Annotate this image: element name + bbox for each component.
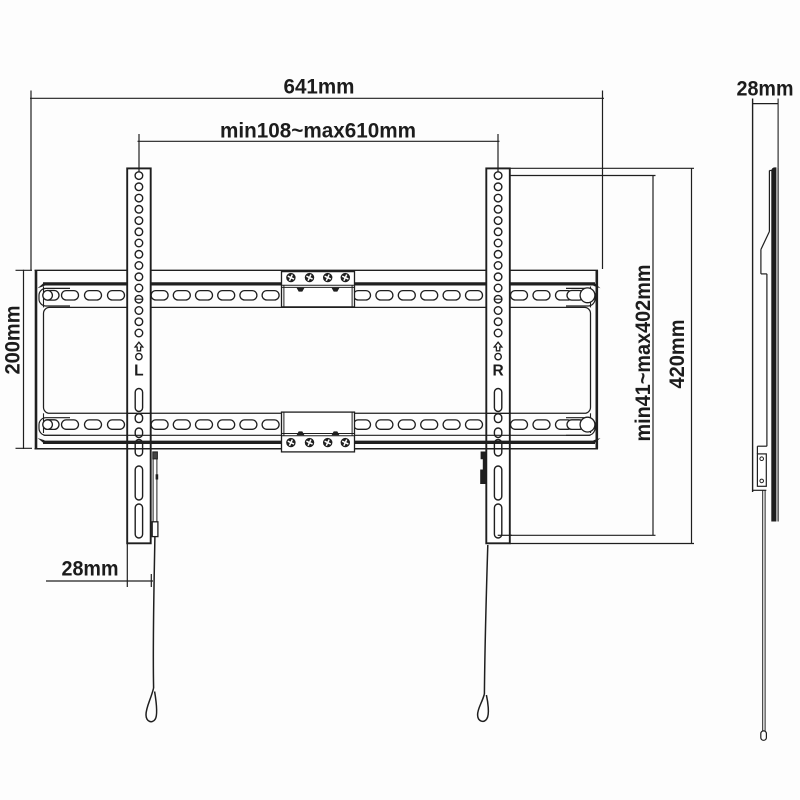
svg-text:28mm: 28mm	[62, 558, 119, 581]
svg-text:L: L	[134, 363, 143, 380]
svg-text:min41~max402mm: min41~max402mm	[632, 265, 655, 442]
svg-text:28mm: 28mm	[737, 78, 794, 101]
svg-text:min108~max610mm: min108~max610mm	[220, 120, 416, 143]
svg-text:200mm: 200mm	[2, 306, 25, 375]
svg-text:420mm: 420mm	[666, 320, 689, 389]
svg-text:641mm: 641mm	[284, 76, 355, 99]
svg-text:R: R	[492, 363, 503, 380]
